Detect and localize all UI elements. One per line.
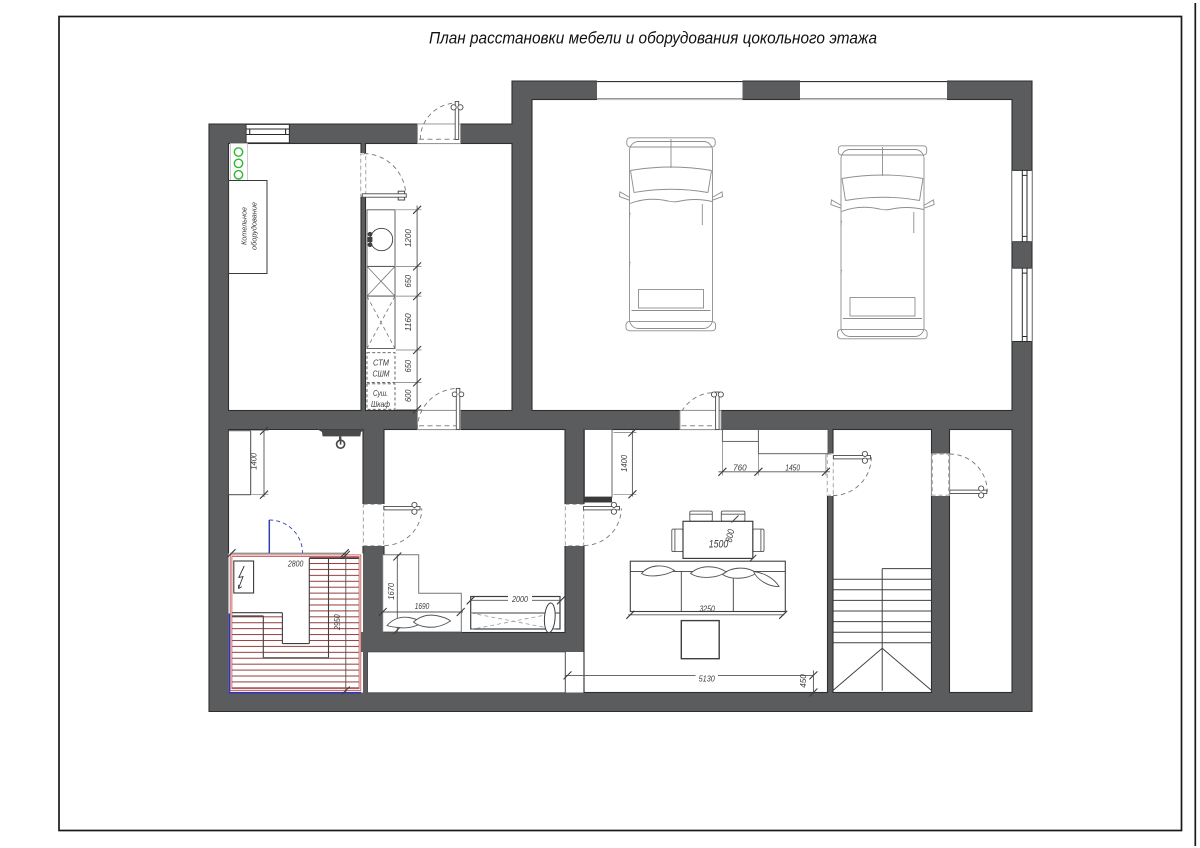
svg-text:СТМ: СТМ	[373, 357, 390, 367]
svg-text:2800: 2800	[287, 558, 304, 568]
svg-text:План расстановки мебели и обор: План расстановки мебели и оборудования ц…	[429, 29, 877, 48]
svg-text:1200: 1200	[403, 229, 413, 247]
svg-text:1450: 1450	[785, 462, 800, 472]
svg-text:2950: 2950	[332, 614, 342, 631]
svg-text:1670: 1670	[386, 582, 396, 599]
svg-text:5130: 5130	[699, 673, 716, 683]
svg-text:650: 650	[403, 275, 413, 288]
svg-text:1160: 1160	[403, 313, 413, 331]
svg-text:650: 650	[403, 360, 413, 373]
svg-text:2000: 2000	[511, 594, 528, 604]
svg-text:Шкаф: Шкаф	[371, 399, 390, 409]
svg-text:оборудование: оборудование	[250, 202, 259, 250]
svg-text:Суш.: Суш.	[373, 388, 388, 398]
svg-text:Котельное: Котельное	[240, 207, 249, 245]
svg-text:760: 760	[733, 462, 747, 472]
svg-text:1400: 1400	[619, 455, 629, 472]
svg-text:3250: 3250	[699, 603, 715, 613]
svg-text:СШМ: СШМ	[373, 369, 391, 379]
svg-text:600: 600	[403, 389, 413, 402]
svg-text:450: 450	[799, 674, 808, 688]
svg-text:1400: 1400	[248, 453, 258, 470]
svg-text:1690: 1690	[415, 601, 430, 611]
